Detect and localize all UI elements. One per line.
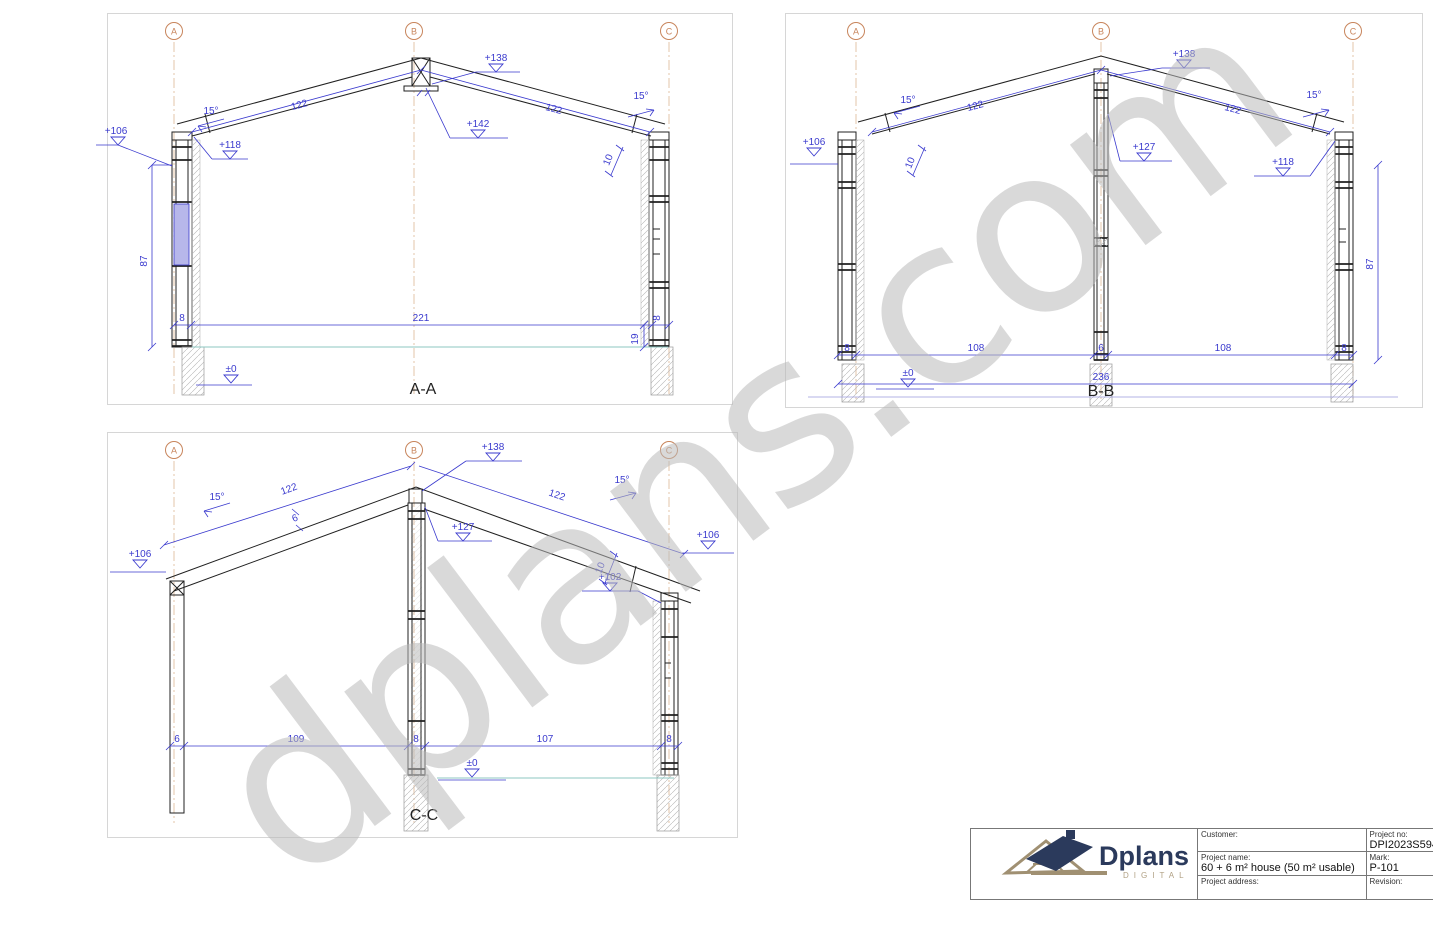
dimension-label: 108 <box>1215 343 1232 354</box>
dimension-label: 122 <box>279 481 299 497</box>
company-logo: Dplans DIGITAL <box>971 829 1198 899</box>
logo-subtitle: DIGITAL <box>1123 871 1189 880</box>
dimension-label: 6 <box>1098 343 1104 354</box>
dimension-label: 10 <box>601 152 616 167</box>
grid-bubble-b: B <box>411 446 417 456</box>
dimension-label: 122 <box>290 98 309 113</box>
dimension-label: 236 <box>1093 372 1110 383</box>
level-label: +127 <box>452 522 475 533</box>
level-label: ±0 <box>466 758 477 769</box>
roof-outline <box>166 487 700 603</box>
level-markers <box>790 60 1335 389</box>
level-label: +106 <box>697 530 720 541</box>
dimension-label: 109 <box>288 734 305 745</box>
grid-lines <box>174 42 669 396</box>
dimension-lines <box>160 462 688 750</box>
section-cc-frame: A B C <box>107 432 738 838</box>
column-left <box>172 132 200 347</box>
logo-house-icon <box>1006 830 1107 875</box>
grid-bubble-b: B <box>411 27 417 37</box>
level-label: +138 <box>1173 49 1196 60</box>
customer-label: Customer: <box>1201 830 1363 839</box>
level-label: +106 <box>803 137 826 148</box>
grid-bubbles: A B C <box>848 23 1362 40</box>
project-name-value: 60 + 6 m² house (50 m² usable) <box>1201 862 1363 875</box>
dimension-label: 8 <box>666 734 672 745</box>
level-label: +138 <box>485 53 508 64</box>
dimension-label: 221 <box>413 313 430 324</box>
title-block: Dplans DIGITAL Customer: Project name: 6… <box>970 828 1433 900</box>
dimension-label: 8 <box>179 313 185 324</box>
column-right <box>641 132 669 347</box>
section-label-aa: A-A <box>410 381 437 398</box>
section-label-bb: B-B <box>1088 383 1115 400</box>
level-label: +142 <box>467 119 490 130</box>
grid-bubbles: A B C <box>166 442 678 459</box>
level-label: +106 <box>129 549 152 560</box>
dimension-label: 19 <box>630 333 641 345</box>
dimension-label: 8 <box>844 343 850 354</box>
dimension-lines <box>148 66 673 351</box>
grid-bubble-c: C <box>1350 27 1357 37</box>
level-markers <box>96 64 520 385</box>
level-label: +118 <box>1272 157 1294 168</box>
dimension-label: 87 <box>1365 258 1376 270</box>
dimension-label: 122 <box>547 488 567 504</box>
level-label: +106 <box>105 126 128 137</box>
dimension-label: 107 <box>537 734 554 745</box>
dimension-label: 8 <box>652 315 663 321</box>
dimension-label: 8 <box>413 734 419 745</box>
title-block-right-column: Project no: DPI2023S594 Mark: P-101 Revi… <box>1367 829 1433 899</box>
dimension-label: 122 <box>544 102 563 117</box>
project-name-label: Project name: <box>1201 853 1363 862</box>
section-aa-frame: A B C <box>107 13 733 405</box>
grid-bubble-c: C <box>666 446 673 456</box>
dimension-label: 6 <box>174 734 180 745</box>
angle-label: 15° <box>203 106 218 117</box>
level-label: +138 <box>482 442 505 453</box>
foundations <box>404 775 679 831</box>
angle-label: 15° <box>900 95 915 106</box>
grid-bubble-a: A <box>171 27 177 37</box>
section-label-cc: C-C <box>410 807 438 824</box>
post-left <box>170 581 184 813</box>
window <box>174 204 189 265</box>
section-cc-drawing: A B C <box>108 433 737 837</box>
level-label: +118 <box>219 140 241 151</box>
dimension-label: 87 <box>139 255 150 267</box>
level-label: ±0 <box>902 368 913 379</box>
dimension-label: 8 <box>1341 343 1347 354</box>
grid-bubble-a: A <box>853 27 859 37</box>
logo-wordmark: Dplans <box>1099 841 1189 871</box>
project-no-value: DPI2023S594 <box>1370 839 1433 852</box>
grid-bubble-a: A <box>171 446 177 456</box>
column-right <box>653 593 678 775</box>
level-label: ±0 <box>225 364 236 375</box>
angle-label: 15° <box>209 492 224 503</box>
section-bb-drawing: A B C <box>786 14 1422 407</box>
dimension-label: 108 <box>968 343 985 354</box>
dimension-label: 122 <box>1223 102 1242 117</box>
mark-value: P-101 <box>1370 862 1433 875</box>
column-right <box>1327 132 1353 360</box>
grid-bubble-c: C <box>666 27 673 37</box>
dimension-label: 122 <box>966 99 985 114</box>
grid-bubbles: A B C <box>166 23 678 40</box>
grid-bubble-b: B <box>1098 27 1104 37</box>
section-aa-drawing: A B C <box>108 14 732 404</box>
column-left <box>838 132 864 360</box>
angle-label: 15° <box>633 91 648 102</box>
angle-label: 15° <box>1306 90 1321 101</box>
project-no-label: Project no: <box>1370 830 1433 839</box>
mark-label: Mark: <box>1370 853 1433 862</box>
title-block-middle-column: Customer: Project name: 60 + 6 m² house … <box>1198 829 1367 899</box>
angle-label: 15° <box>614 475 629 486</box>
level-label: +127 <box>1133 142 1156 153</box>
drawing-sheet: { "watermark": {"text": "dplans.com"}, "… <box>0 0 1433 882</box>
section-bb-frame: A B C <box>785 13 1423 408</box>
